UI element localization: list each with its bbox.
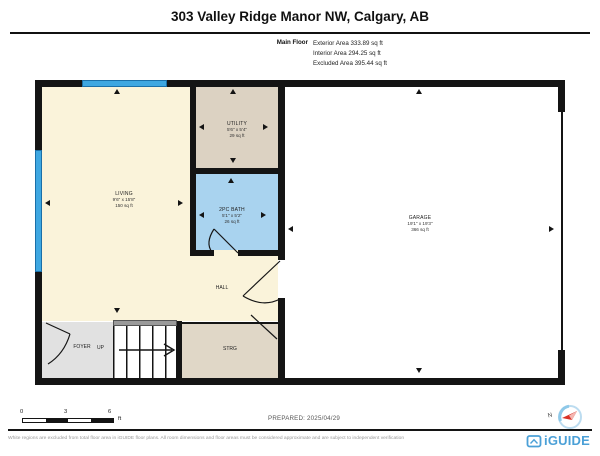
storage-label: STRG <box>200 346 260 352</box>
floor-area-summary: Exterior Area 333.89 sq ft Interior Area… <box>313 39 387 69</box>
page-title: 303 Valley Ridge Manor NW, Calgary, AB <box>0 9 600 24</box>
wall-right-lower-stub <box>558 350 565 385</box>
utility-room-label: UTILITY 5'6" x 5'4" 29 sq ft <box>197 121 277 139</box>
window-left <box>35 150 42 272</box>
window-top <box>82 80 167 87</box>
garage-label: GARAGE 19'1" x 19'3" 366 sq ft <box>360 215 480 233</box>
iguide-logo: iGUIDE <box>526 433 590 448</box>
dimension-arrow-icon <box>230 89 236 94</box>
wall-bottom <box>35 378 565 385</box>
hall-label: HALL <box>192 285 252 291</box>
bathroom-label: 2PC BATH 5'1" x 5'2" 26 sq ft <box>192 207 272 225</box>
stairs-up-label: UP <box>97 345 113 351</box>
scale-tick-6: 6 <box>108 409 111 415</box>
prepared-date: PREPARED: 2025/04/29 <box>268 415 340 422</box>
wall-utility-bottom <box>190 168 278 174</box>
footer-divider <box>8 429 592 431</box>
interior-area: Interior Area 294.25 sq ft <box>313 49 387 59</box>
exterior-area: Exterior Area 333.89 sq ft <box>313 39 387 49</box>
wall-stairs-right <box>177 321 182 378</box>
scale-tick-3: 3 <box>64 409 67 415</box>
compass-rose-icon <box>557 404 583 430</box>
wall-bath-bottom-right <box>238 250 278 256</box>
excluded-area: Excluded Area 395.44 sq ft <box>313 59 387 69</box>
dimension-arrow-icon <box>45 200 50 206</box>
dimension-arrow-icon <box>549 226 554 232</box>
wall-storage-top <box>182 322 278 324</box>
iguide-logo-icon <box>526 434 542 448</box>
scale-tick-0: 0 <box>20 409 23 415</box>
dimension-arrow-icon <box>288 226 293 232</box>
staircase <box>113 326 177 378</box>
wall-utility-left <box>190 87 196 174</box>
dimension-arrow-icon <box>114 89 120 94</box>
foyer-label: FOYER <box>62 344 102 350</box>
scale-bar <box>22 418 114 423</box>
disclaimer-text: White regions are excluded from total fl… <box>8 436 468 441</box>
dimension-arrow-icon <box>228 178 234 183</box>
compass-icon: N <box>548 404 588 430</box>
iguide-logo-text: iGUIDE <box>544 433 590 448</box>
dimension-arrow-icon <box>416 89 422 94</box>
compass-north-label: N <box>547 413 553 420</box>
dimension-arrow-icon <box>114 308 120 313</box>
wall-divider-lower <box>278 298 285 385</box>
wall-divider-upper <box>278 80 285 260</box>
living-room-label: LIVING 9'6" x 15'8" 150 sq ft <box>64 191 184 209</box>
floor-name: Main Floor <box>230 39 308 46</box>
scale-unit: ft <box>118 416 121 422</box>
dimension-arrow-icon <box>416 368 422 373</box>
wall-right-upper-stub <box>558 80 565 112</box>
dimension-arrow-icon <box>230 158 236 163</box>
wall-bath-bottom-left <box>190 250 214 256</box>
garage-door-line <box>561 112 563 350</box>
header-divider <box>10 32 590 34</box>
